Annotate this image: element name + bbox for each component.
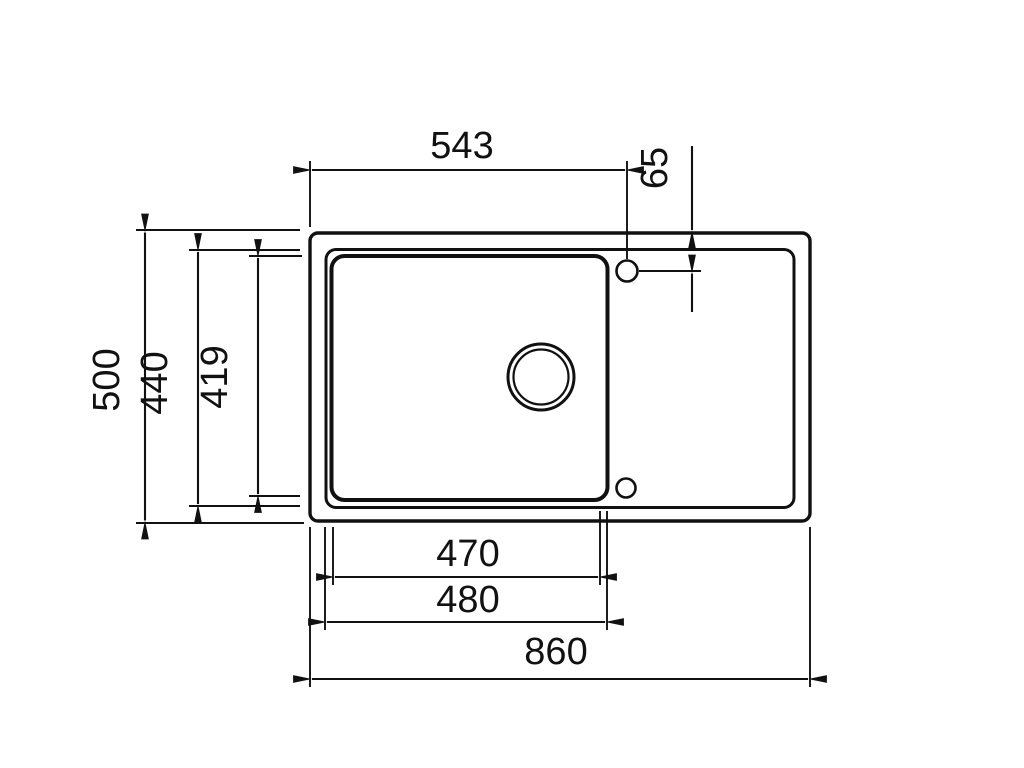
dimension-label: 419 xyxy=(194,345,236,408)
drain-hole-inner-circle xyxy=(514,350,569,405)
sink-bowl xyxy=(332,256,608,500)
dimension-543: 543 xyxy=(310,125,627,259)
dimension-860: 860 xyxy=(310,527,810,687)
tap-hole-top xyxy=(617,261,638,282)
dimension-label: 65 xyxy=(634,147,676,189)
dimension-label: 470 xyxy=(436,533,499,575)
technical-drawing-canvas: 543 65 500 440 419 xyxy=(0,0,1024,768)
sink-outer-edge xyxy=(310,233,810,521)
dimension-label: 543 xyxy=(430,125,493,167)
dimension-65: 65 xyxy=(634,146,701,312)
dimension-419: 419 xyxy=(194,256,302,496)
drain-hole-outer-circle xyxy=(508,344,574,410)
sink-rim xyxy=(326,250,794,508)
dimension-label: 500 xyxy=(86,348,128,411)
sink-body xyxy=(310,233,810,521)
dimension-label: 480 xyxy=(436,579,499,621)
dimension-label: 440 xyxy=(134,351,176,414)
dimension-label: 860 xyxy=(524,631,587,673)
sink-dimension-drawing: 543 65 500 440 419 xyxy=(0,0,1024,768)
tap-hole-bottom xyxy=(617,479,636,498)
